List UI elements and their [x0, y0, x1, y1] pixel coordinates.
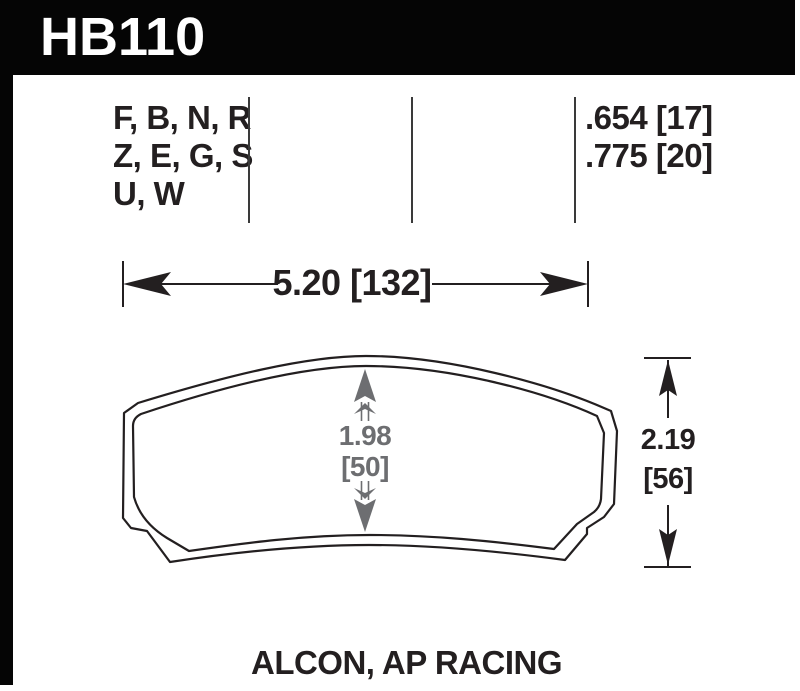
arrowhead-down-icon [354, 499, 376, 532]
diagram-canvas [0, 0, 800, 691]
applications-label: ALCON, AP RACING [13, 644, 800, 682]
width-dimension-label: 5.20 [132] [252, 261, 452, 305]
column-dividers [249, 97, 575, 223]
chevron-up-icon [354, 403, 376, 414]
overall-height-inches: 2.19 [608, 421, 728, 460]
chevron-down-icon [354, 488, 376, 499]
overall-height-mm: [56] [608, 460, 728, 499]
center-height-label: 1.98 [50] [305, 420, 425, 482]
overall-height-label: 2.19 [56] [608, 421, 728, 499]
center-height-mm: [50] [305, 451, 425, 482]
arrowhead-up-icon [354, 369, 376, 402]
center-height-inches: 1.98 [305, 420, 425, 451]
